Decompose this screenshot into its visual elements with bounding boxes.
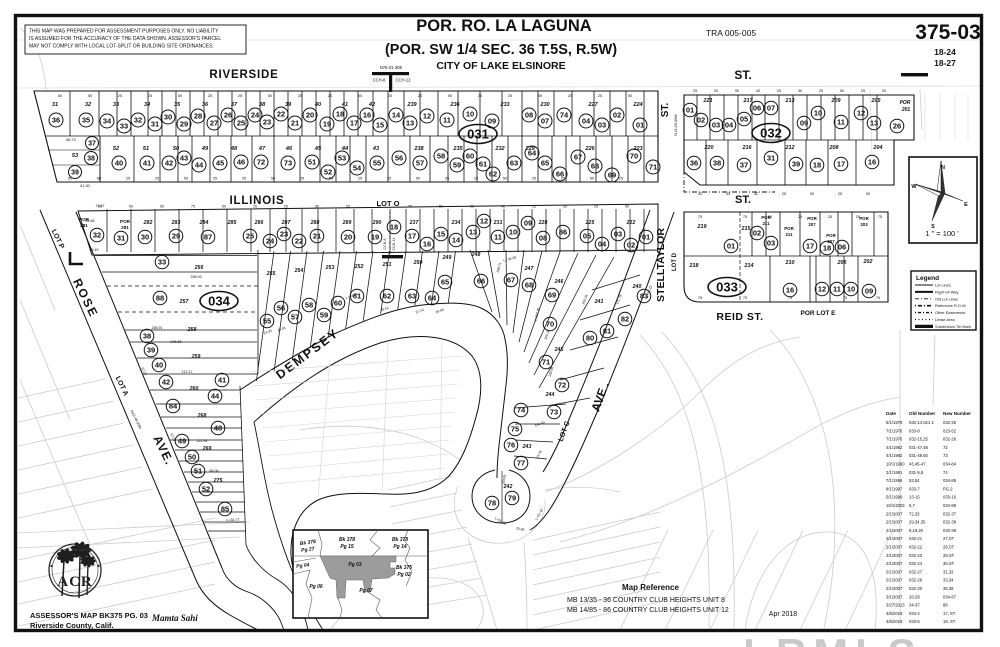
svg-text:25: 25 [838, 192, 842, 196]
svg-text:07: 07 [767, 104, 775, 113]
svg-text:26: 26 [224, 111, 232, 120]
svg-text:3/27/2013: 3/27/2013 [886, 603, 905, 608]
svg-text:CCH-8: CCH-8 [373, 78, 386, 83]
svg-text:Bk 378: Bk 378 [339, 537, 355, 543]
svg-text:251: 251 [382, 262, 392, 268]
svg-text:35: 35 [174, 102, 181, 108]
svg-text:40: 40 [115, 159, 123, 168]
svg-text:Pg 15: Pg 15 [340, 544, 354, 550]
svg-text:2/1/2007: 2/1/2007 [886, 586, 903, 591]
svg-text:18: 18 [390, 223, 398, 232]
svg-text:30,ST: 30,ST [943, 561, 955, 566]
svg-text:85: 85 [221, 505, 229, 514]
svg-text:031-49,50: 031-49,50 [909, 453, 929, 458]
svg-text:232: 232 [494, 146, 505, 152]
svg-text:88.70: 88.70 [66, 138, 76, 142]
svg-text:201: 201 [901, 107, 911, 113]
svg-text:56: 56 [277, 304, 285, 313]
svg-text:25: 25 [388, 94, 392, 98]
svg-text:033: 033 [716, 280, 738, 295]
svg-text:25: 25 [532, 205, 536, 209]
svg-text:10: 10 [814, 109, 822, 118]
svg-text:11: 11 [833, 285, 841, 294]
svg-text:16: 16 [423, 240, 431, 249]
svg-text:ST.: ST. [735, 194, 751, 206]
svg-text:230: 230 [539, 102, 550, 108]
svg-text:253: 253 [325, 265, 335, 271]
svg-text:41: 41 [218, 376, 226, 385]
svg-text:10: 10 [847, 285, 855, 294]
svg-text:17: 17 [837, 160, 845, 169]
svg-text:THIS MAP WAS PREPARED FOR ASSE: THIS MAP WAS PREPARED FOR ASSESSMENT PUR… [29, 29, 219, 35]
svg-text:25: 25 [358, 177, 362, 181]
svg-text:10/1/2003: 10/1/2003 [886, 503, 905, 508]
svg-text:04: 04 [725, 121, 734, 130]
svg-text:034-85: 034-85 [943, 478, 957, 483]
svg-text:67: 67 [507, 276, 515, 285]
svg-text:01: 01 [642, 233, 650, 242]
svg-text:N76-31-30E: N76-31-30E [380, 65, 403, 70]
svg-text:42: 42 [698, 192, 702, 196]
svg-text:25: 25 [246, 232, 254, 241]
svg-text:02: 02 [627, 241, 635, 250]
svg-text:72: 72 [257, 158, 265, 167]
svg-text:25: 25 [768, 215, 772, 219]
svg-text:258: 258 [187, 327, 197, 333]
svg-text:032: 032 [760, 126, 782, 141]
svg-text:08: 08 [539, 234, 547, 243]
svg-text:239: 239 [406, 102, 417, 108]
svg-text:50: 50 [439, 205, 443, 209]
svg-text:77: 77 [517, 459, 525, 468]
svg-text:42: 42 [165, 159, 173, 168]
svg-text:25: 25 [148, 94, 152, 98]
svg-text:72: 72 [558, 381, 566, 390]
svg-text:8/1/1997: 8/1/1997 [886, 486, 903, 491]
svg-text:MB 14/85 - 86 COUNTRY CLUB: MB 14/85 - 86 COUNTRY CLUB HEIGHTS UNIT … [567, 607, 729, 614]
svg-text:034-84: 034-84 [943, 462, 957, 467]
svg-text:243: 243 [522, 444, 532, 450]
svg-text:50: 50 [416, 177, 420, 181]
svg-text:03: 03 [712, 121, 720, 130]
svg-text:211: 211 [762, 221, 770, 226]
svg-text:CITY OF LAKE ELSINORE: CITY OF LAKE ELSINORE [436, 60, 565, 72]
svg-text:17: 17 [408, 232, 416, 241]
svg-text:13-15: 13-15 [909, 495, 920, 500]
svg-text:237: 237 [409, 220, 420, 226]
svg-text:51: 51 [194, 467, 202, 476]
svg-text:75: 75 [743, 296, 747, 300]
svg-text:25: 25 [445, 177, 449, 181]
svg-text:80: 80 [586, 334, 594, 343]
svg-text:37: 37 [231, 102, 238, 108]
svg-text:032-30: 032-30 [909, 586, 923, 591]
svg-text:66: 66 [477, 277, 485, 286]
svg-text:Old Number: Old Number [909, 411, 936, 416]
svg-text:68: 68 [525, 281, 533, 290]
svg-text:225: 225 [585, 220, 595, 226]
svg-text:25: 25 [693, 89, 697, 93]
svg-text:25: 25 [619, 177, 623, 181]
svg-text:Pg 14: Pg 14 [393, 544, 407, 550]
svg-text:02: 02 [613, 111, 621, 120]
svg-text:73: 73 [943, 453, 948, 458]
svg-text:247: 247 [524, 266, 535, 272]
svg-text:19, ST: 19, ST [943, 619, 956, 624]
svg-text:216: 216 [742, 145, 753, 151]
svg-text:50: 50 [625, 205, 629, 209]
svg-text:50: 50 [222, 205, 226, 209]
svg-text:27,ST: 27,ST [943, 536, 955, 541]
svg-text:39: 39 [285, 102, 292, 108]
svg-text:71: 71 [542, 358, 550, 367]
svg-text:31,32: 31,32 [943, 569, 954, 574]
svg-text:50: 50 [810, 192, 814, 196]
svg-text:60: 60 [97, 177, 101, 181]
svg-text:50: 50 [329, 177, 333, 181]
svg-text:49: 49 [178, 437, 186, 446]
svg-text:New Number: New Number [943, 411, 971, 416]
svg-text:58: 58 [437, 152, 445, 161]
svg-text:250: 250 [413, 260, 423, 266]
svg-text:06: 06 [838, 243, 846, 252]
svg-text:032-37: 032-37 [943, 511, 957, 516]
svg-text:L=34.77: L=34.77 [226, 518, 239, 522]
svg-text:217: 217 [743, 98, 754, 104]
svg-text:1 " = 100 ': 1 " = 100 ' [925, 229, 959, 238]
svg-text:39: 39 [71, 170, 79, 177]
svg-text:032-14,021-1: 032-14,021-1 [909, 420, 935, 425]
svg-text:032-24: 032-24 [909, 561, 923, 566]
svg-text:POR: POR [807, 216, 817, 221]
svg-text:258.91: 258.91 [152, 326, 163, 330]
svg-text:Riverside County, Calif.: Riverside County, Calif. [30, 621, 114, 630]
svg-text:04: 04 [582, 117, 591, 126]
svg-text:ASSESSOR'S MAP BK375 PG. 03: ASSESSOR'S MAP BK375 PG. 03 [30, 611, 148, 620]
svg-text:25: 25 [714, 89, 718, 93]
svg-text:73: 73 [284, 159, 292, 168]
svg-text:CCH-8: CCH-8 [383, 239, 387, 250]
svg-text:220: 220 [704, 145, 714, 151]
svg-text:13: 13 [870, 119, 878, 128]
svg-text:74: 74 [517, 406, 526, 415]
svg-text:63: 63 [510, 159, 518, 168]
svg-text:22: 22 [295, 237, 303, 246]
svg-text:10/1/1990: 10/1/1990 [886, 462, 905, 467]
svg-text:52: 52 [113, 146, 120, 152]
svg-text:75: 75 [788, 296, 792, 300]
svg-text:29,34,35: 29,34,35 [909, 520, 926, 525]
svg-text:26: 26 [893, 122, 901, 131]
svg-text:031: 031 [467, 127, 489, 142]
svg-text:15: 15 [376, 121, 384, 130]
svg-text:12: 12 [857, 109, 865, 118]
svg-text:25: 25 [561, 177, 565, 181]
svg-text:Pg 07: Pg 07 [359, 588, 373, 594]
svg-text:01: 01 [636, 121, 644, 130]
svg-text:53,54: 53,54 [909, 478, 920, 483]
svg-text:69: 69 [548, 291, 556, 300]
svg-text:256: 256 [194, 265, 204, 271]
svg-text:38: 38 [259, 102, 266, 108]
svg-text:33,34: 33,34 [943, 578, 954, 583]
svg-text:43: 43 [372, 146, 380, 152]
svg-text:W: W [911, 184, 917, 190]
svg-text:C O U N T Y O F R I V E R: C O U N T Y O F R I V E R S I D E [57, 549, 94, 552]
svg-text:222: 222 [626, 220, 636, 226]
svg-text:45: 45 [216, 159, 224, 168]
svg-text:03: 03 [614, 230, 622, 239]
svg-text:25: 25 [568, 94, 572, 98]
svg-text:032-15,25: 032-15,25 [909, 437, 929, 442]
svg-text:66.06: 66.06 [210, 469, 219, 473]
svg-text:033-4: 033-4 [909, 611, 920, 616]
svg-text:76: 76 [507, 441, 515, 450]
svg-text:219: 219 [697, 224, 707, 230]
svg-text:50: 50 [268, 94, 272, 98]
svg-text:STELLTAYLOR: STELLTAYLOR [655, 228, 667, 302]
svg-text:75: 75 [876, 296, 880, 300]
svg-text:46: 46 [237, 158, 245, 167]
svg-text:18-24: 18-24 [934, 47, 956, 57]
svg-text:65: 65 [541, 159, 549, 168]
svg-text:33: 33 [113, 102, 120, 108]
svg-text:034-87: 034-87 [943, 594, 957, 599]
svg-text:25: 25 [782, 192, 786, 196]
svg-text:TRA 005-005: TRA 005-005 [706, 28, 756, 38]
svg-text:25: 25 [508, 94, 512, 98]
svg-text:75: 75 [191, 205, 195, 209]
svg-text:Reference R.O.W: Reference R.O.W [935, 303, 966, 308]
svg-text:2/1/2007: 2/1/2007 [886, 536, 903, 541]
svg-text:POR: POR [120, 219, 131, 224]
svg-text:73: 73 [550, 408, 558, 417]
svg-text:41: 41 [341, 102, 348, 108]
svg-text:ST.: ST. [660, 103, 671, 118]
svg-text:245: 245 [554, 347, 564, 353]
svg-text:02: 02 [753, 229, 761, 238]
svg-text:88: 88 [156, 294, 164, 303]
svg-text:25: 25 [532, 177, 536, 181]
svg-text:25: 25 [208, 94, 212, 98]
svg-text:N: N [941, 165, 945, 171]
svg-text:ST.: ST. [734, 68, 751, 82]
svg-text:25: 25 [828, 215, 832, 219]
svg-text:2/1/2007: 2/1/2007 [886, 545, 903, 550]
svg-text:84: 84 [169, 402, 178, 411]
svg-text:215: 215 [741, 226, 752, 232]
svg-text:5/1/1998: 5/1/1998 [886, 495, 903, 500]
svg-text:203: 203 [860, 222, 868, 227]
svg-text:032-28: 032-28 [909, 578, 923, 583]
svg-text:375-03: 375-03 [915, 21, 980, 44]
svg-text:25: 25 [408, 205, 412, 209]
svg-text:MAY NOT COMPLY WITH LOCAL LOT-: MAY NOT COMPLY WITH LOCAL LOT-SPLIT OR B… [29, 44, 214, 50]
svg-text:205: 205 [871, 98, 882, 104]
svg-text:50: 50 [628, 94, 632, 98]
svg-text:290: 290 [372, 220, 382, 226]
svg-text:44: 44 [211, 392, 220, 401]
svg-text:PG.2: PG.2 [943, 486, 953, 491]
svg-text:47: 47 [258, 146, 266, 152]
svg-text:51: 51 [143, 146, 149, 152]
svg-text:122.94: 122.94 [197, 439, 208, 443]
svg-text:01: 01 [686, 106, 694, 115]
svg-text:17: 17 [806, 242, 814, 251]
svg-text:4/1/1982: 4/1/1982 [886, 453, 903, 458]
svg-text:25: 25 [126, 177, 130, 181]
svg-text:24: 24 [266, 237, 275, 246]
svg-text:Lease Area: Lease Area [935, 317, 956, 322]
svg-text:25: 25 [213, 177, 217, 181]
svg-text:50: 50 [377, 205, 381, 209]
svg-text:31: 31 [151, 120, 159, 129]
svg-text:75: 75 [698, 296, 702, 300]
svg-text:43: 43 [726, 192, 730, 196]
svg-text:63: 63 [408, 292, 416, 301]
svg-text:01: 01 [727, 242, 735, 251]
svg-text:50: 50 [173, 146, 180, 152]
svg-text:POR: POR [859, 216, 869, 221]
svg-text:033-5: 033-5 [909, 619, 920, 624]
svg-text:LOT D: LOT D [672, 252, 678, 271]
svg-text:05: 05 [583, 232, 591, 241]
svg-text:74: 74 [560, 111, 569, 120]
svg-text:031-47,48: 031-47,48 [909, 445, 929, 450]
svg-text:Other Easements: Other Easements [935, 310, 965, 315]
svg-text:50: 50 [358, 94, 362, 98]
svg-text:25: 25 [418, 94, 422, 98]
svg-text:50: 50 [315, 205, 319, 209]
svg-text:233: 233 [499, 102, 510, 108]
svg-text:25: 25 [237, 119, 245, 128]
svg-text:31: 31 [52, 102, 58, 108]
svg-text:12: 12 [423, 112, 431, 121]
svg-text:032-27: 032-27 [909, 569, 923, 574]
svg-text:30: 30 [141, 233, 149, 242]
svg-text:14: 14 [452, 236, 461, 245]
svg-text:90: 90 [470, 205, 474, 209]
svg-text:CCH-12: CCH-12 [395, 78, 411, 83]
svg-text:25: 25 [598, 94, 602, 98]
svg-text:72: 72 [943, 445, 948, 450]
svg-text:4/1/1982: 4/1/1982 [886, 445, 903, 450]
svg-text:2/1/2007: 2/1/2007 [886, 578, 903, 583]
svg-text:214: 214 [744, 263, 754, 269]
svg-text:41: 41 [143, 159, 151, 168]
svg-text:56: 56 [395, 154, 403, 163]
svg-text:207: 207 [808, 222, 816, 227]
svg-text:28: 28 [194, 112, 202, 121]
svg-text:33: 33 [120, 122, 128, 131]
svg-text:226: 226 [584, 146, 595, 152]
svg-text:21: 21 [313, 232, 321, 241]
svg-text:50: 50 [866, 192, 870, 196]
svg-text:57: 57 [291, 313, 299, 322]
svg-text:70: 70 [546, 320, 554, 329]
svg-text:229: 229 [524, 146, 535, 152]
svg-text:034-86: 034-86 [943, 503, 957, 508]
svg-text:25: 25 [118, 94, 122, 98]
svg-text:75: 75 [743, 215, 747, 219]
svg-text:06: 06 [753, 104, 761, 113]
svg-text:52: 52 [202, 485, 210, 494]
svg-text:43: 43 [180, 154, 188, 163]
svg-text:REID ST.: REID ST. [716, 311, 763, 323]
svg-text:69: 69 [608, 171, 616, 180]
svg-text:42: 42 [754, 192, 758, 196]
svg-text:20: 20 [306, 111, 314, 120]
svg-text:57: 57 [416, 159, 424, 168]
svg-text:246: 246 [554, 279, 564, 285]
svg-text:032-26: 032-26 [943, 437, 957, 442]
svg-text:36: 36 [52, 116, 60, 125]
svg-text:23: 23 [280, 230, 288, 239]
svg-text:19: 19 [323, 120, 331, 129]
svg-text:42: 42 [368, 102, 376, 108]
svg-text:Pg 06: Pg 06 [309, 584, 323, 590]
svg-text:25: 25 [594, 205, 598, 209]
svg-text:241: 241 [594, 299, 604, 305]
svg-text:231: 231 [493, 220, 503, 226]
svg-text:288: 288 [310, 220, 320, 226]
svg-text:7/1/1976: 7/1/1976 [886, 428, 903, 433]
svg-text:IS ASSUMED FOR THE ACCURACY OF: IS ASSUMED FOR THE ACCURACY OF THE DATA … [29, 36, 221, 42]
svg-text:296.93: 296.93 [191, 275, 202, 279]
svg-text:2/1/2007: 2/1/2007 [886, 520, 903, 525]
svg-text:023-52: 023-52 [943, 428, 957, 433]
svg-text:75: 75 [698, 215, 702, 219]
svg-text:48: 48 [214, 424, 222, 433]
svg-text:08: 08 [525, 111, 533, 120]
svg-text:235: 235 [452, 146, 463, 152]
svg-text:Bk 378: Bk 378 [392, 537, 408, 543]
svg-text:22: 22 [277, 110, 285, 119]
svg-text:45: 45 [314, 146, 322, 152]
svg-text:031-5,8: 031-5,8 [909, 470, 924, 475]
svg-text:25: 25 [298, 94, 302, 98]
svg-text:62: 62 [489, 170, 497, 179]
svg-text:52: 52 [324, 168, 332, 177]
svg-text:09: 09 [488, 117, 496, 126]
svg-text:221: 221 [703, 98, 713, 104]
svg-text:03: 03 [598, 121, 606, 130]
svg-text:283: 283 [171, 220, 181, 226]
svg-text:11: 11 [837, 118, 845, 127]
svg-text:7/1/1976: 7/1/1976 [886, 437, 903, 442]
svg-text:59: 59 [453, 161, 461, 170]
svg-text:14: 14 [392, 111, 401, 120]
svg-text:20: 20 [344, 233, 352, 242]
svg-text:50: 50 [129, 205, 133, 209]
svg-text:2/1/2007: 2/1/2007 [886, 528, 903, 533]
svg-text:78: 78 [488, 499, 496, 508]
svg-text:255: 255 [266, 271, 276, 277]
svg-text:249: 249 [442, 255, 452, 261]
svg-text:11: 11 [494, 233, 502, 242]
svg-text:35,36: 35,36 [943, 586, 954, 591]
svg-text:75: 75 [511, 425, 519, 434]
svg-text:25: 25 [777, 89, 781, 93]
svg-text:87: 87 [204, 233, 212, 242]
svg-text:12: 12 [480, 217, 488, 226]
svg-text:25: 25 [798, 215, 802, 219]
svg-text:2/1/2007: 2/1/2007 [886, 553, 903, 558]
svg-text:033-8: 033-8 [909, 428, 920, 433]
svg-text:64: 64 [428, 294, 437, 303]
svg-text:2/1/1991: 2/1/1991 [886, 470, 903, 475]
svg-text:238: 238 [413, 146, 424, 152]
